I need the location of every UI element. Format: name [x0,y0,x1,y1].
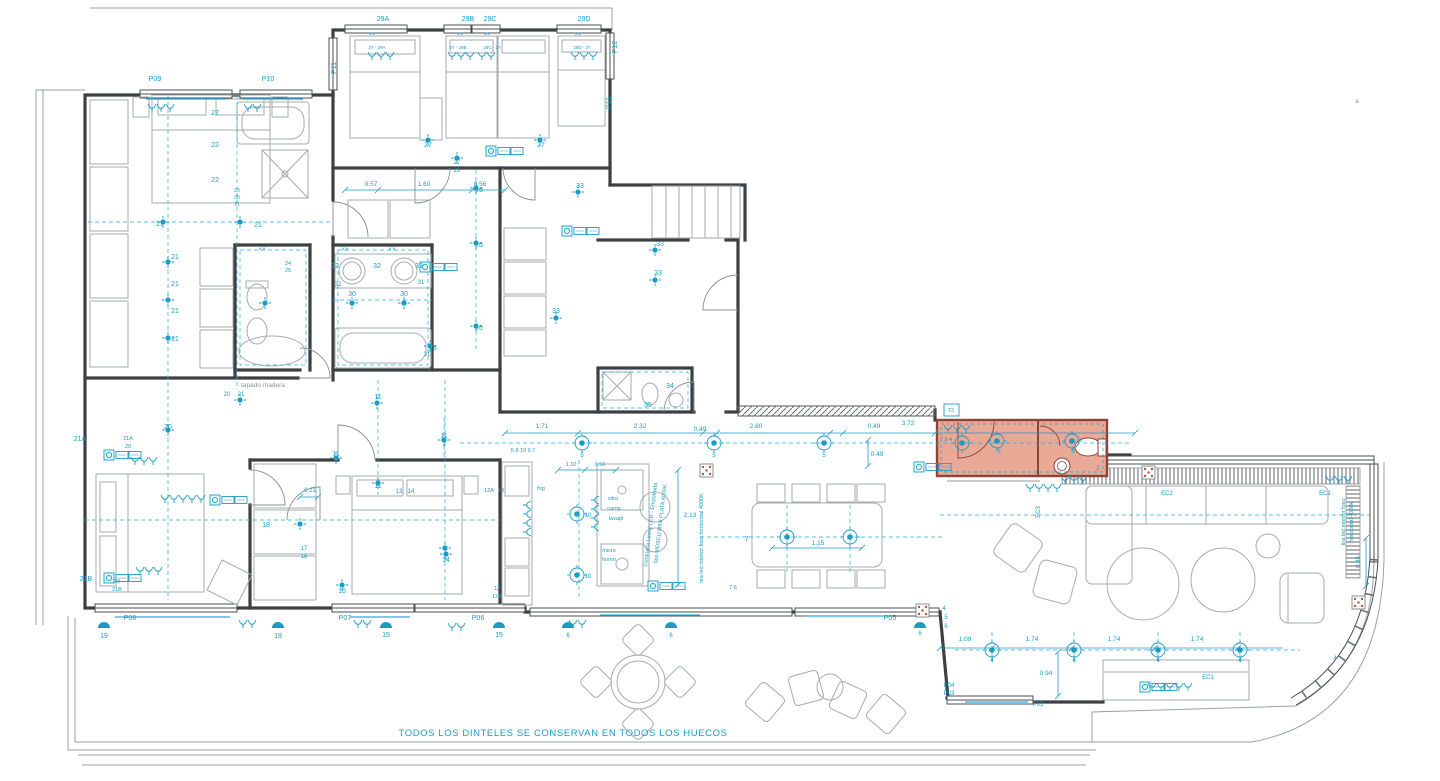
plan-label: P03 [944,691,955,697]
ceiling-light-icon [162,294,174,306]
plan-label: 7 8 4 [940,437,952,443]
plan-label: 18 [262,522,270,529]
plan-label: 4 [1238,658,1242,664]
ceiling-light-icon [398,297,410,309]
plan-label: 23 [234,188,240,194]
dimension-line [1055,649,1061,699]
plan-label: 0.57 [365,181,378,188]
socket-outlet-icon [486,146,523,156]
plan-label: 21B [112,587,122,593]
plan-label: horizontal 4000k [1349,502,1355,543]
plan-label: 5 [822,453,826,459]
plan-label: 0.21 [304,488,316,494]
plan-label: 15 [495,632,503,639]
plan-label: vitro [608,496,618,502]
plan-label: 10 [585,574,592,580]
socket-outlet-icon [648,581,685,591]
switch-curtain-icon [354,620,371,628]
plan-label: 20 [114,579,120,585]
switch-curtain-icon [571,52,597,60]
plan-label: 22 [211,177,219,184]
plan-label: EC1 [1319,491,1331,497]
switch-curtain-icon [523,501,531,536]
plan-label: 33 [552,308,560,315]
plan-label: 17 [301,546,308,552]
wall-light-icon [914,622,926,628]
plan-label: 13 [396,489,403,495]
plan-label: 11 [440,433,447,440]
floor-plan-svg: 29A29B29C29D27 - 29A27 - 29B29C - 2729D … [0,0,1440,781]
plan-label: 20 [224,392,231,398]
ring-light-icon [1230,640,1250,660]
plan-label: ×× [258,247,266,253]
plan-label: 14 [408,489,415,495]
plan-label: 15 [338,588,346,595]
plan-label: 4 [1333,656,1337,662]
plan-label: 19 [100,633,108,640]
plan-label: 22 [211,142,219,149]
ring-light-icon [1148,640,1168,660]
plan-label: 5 8 10 9 7 [511,448,535,454]
plan-label: 20 [234,195,240,201]
plan-label: 26 [475,242,483,249]
switch-curtain-icon [244,104,261,112]
plan-label: 20 [125,444,131,450]
plan-label: 25 [285,268,291,274]
plan-label: 32 [335,282,342,288]
plan-label: 21 [234,202,240,208]
plan-label: frig [537,486,545,492]
plan-label: 11 [374,483,381,490]
plan-label: EC2 [1161,491,1173,497]
plan-label: a [1355,99,1359,105]
plan-label: 1.09 [959,636,972,643]
plan-label: 12B [492,594,502,600]
plan-label: 13 [498,488,504,494]
ring-light-icon [1064,640,1084,660]
plan-label: 14 [442,557,450,564]
ceiling-light-icon [346,297,358,309]
dimension-line [675,467,681,588]
socket-outlet-icon [562,226,599,236]
plan-label: P08 [124,615,137,622]
plan-label: 5 [944,615,948,621]
plan-label: 21 [171,308,179,315]
plan-label: 4 [1072,658,1076,664]
plan-label: EC1 [1202,675,1214,681]
plan-label: 12 [494,586,500,592]
hatched-wall [738,406,935,416]
ceiling-light-icon [234,216,246,228]
plan-label: 0.85 [1356,556,1362,568]
site-outline [36,8,1384,765]
plan-label: 0.49 [871,451,884,458]
plan-label: 29B [462,16,475,23]
plan-label: horno [602,557,616,563]
symbols-layer [98,52,1369,699]
plan-label: P10 [262,76,275,83]
plan-label: 15 [382,632,390,639]
wall-light-icon [665,622,677,628]
plan-label: 16 [301,554,308,560]
plan-label: 6 [918,631,922,637]
plan-label: P04 [944,683,955,689]
plan-label: camp [607,506,620,512]
ring-light-icon [982,640,1002,660]
plan-label: P07 [339,615,352,622]
plan-label: 33 [656,241,664,248]
plan-label: ×× [388,247,396,253]
plan-label: 21 [171,336,179,343]
plan-label: 2.13 [684,512,697,519]
plan-label: 1.74 [1026,636,1039,643]
plan-label: 27 [537,142,545,149]
plan-label: 22 [211,110,219,117]
plan-label: 1.60 [418,181,431,188]
plan-label: 27 [424,142,432,149]
plan-label: P05 [884,615,897,622]
curved-glass-facade [1291,558,1378,705]
plan-label: 0.56 [595,462,606,468]
wall-light-icon [380,622,392,628]
plan-label: 0.49 [868,423,881,430]
dimension-line [555,467,619,473]
plan-label: 11 [332,451,339,458]
socket-outlet-icon [420,262,457,272]
plan-label: 0.94 [1040,670,1053,677]
plan-label: 1.15 [812,540,825,547]
plan-label: 29C - 27 [483,45,501,50]
plan-label: 27 - 29A [368,45,385,50]
plan-label: P06 [472,615,485,622]
plan-label: 29C [484,16,497,23]
text-labels-layer: 29A29B29C29D27 - 29A27 - 29B29C - 2729D … [74,16,1362,708]
plan-label: 35 [644,402,652,409]
plan-label: micro [602,548,615,554]
plan-label: 24 [285,261,291,267]
plan-label: 21A [123,436,133,442]
plan-label: ×× [483,32,491,38]
plan-label: 29D - 27 [573,45,591,50]
plan-label: 4 [942,606,946,612]
plan-note: TODOS LOS DINTELES SE CONSERVAN EN TODOS… [398,728,727,739]
plan-label: 27 - 29B [449,45,466,50]
plan-label: 33 [576,183,584,190]
plan-label: 7 [745,536,749,543]
plan-label: 12A [484,488,494,494]
plan-label: 31 [418,280,425,286]
plan-label: 32 [331,263,339,270]
plan-label: 11 [374,394,381,401]
plan-label: 1.71 [536,423,549,430]
plan-label: 30 [400,291,408,298]
plan-label: 2.80 [750,423,763,430]
walls-layer [85,30,1130,702]
socket-outlet-icon [104,450,141,460]
plan-label: 21 [156,221,164,228]
switch-curtain-icon [239,620,256,628]
ring-light-icon [777,527,797,547]
plan-label: 29A [377,16,390,23]
plan-label: 32 [415,263,423,270]
plan-label: tapado madera [241,382,285,389]
plan-label: 4 [1156,658,1160,664]
plan-label: 26 [475,325,483,332]
plan-label: 3.72 [902,420,915,427]
plan-label: 26 [475,187,483,194]
ceiling-light-icon [259,297,271,309]
plan-label: lavapl [609,516,623,522]
socket-outlet-icon [104,573,141,583]
plan-label: ×× [368,32,376,38]
wall-light-icon [98,622,110,628]
plan-label: 33 [654,270,662,277]
plan-label: 21B [80,576,93,583]
plan-label: 5 [580,453,584,459]
plan-label: P11 [606,97,613,109]
plan-label: ×× [574,32,582,38]
dimension-line [1363,535,1369,589]
floor-plan-canvas: 29A29B29C29D27 - 29A27 - 29B29C - 2729D … [0,0,1440,781]
plan-label: 1.10 [566,462,577,468]
plan-label: T3 [948,408,954,414]
plan-label: tira led interior foso horizontal 4000K [699,493,705,583]
plan-label: ×× [456,32,464,38]
plan-label: P03 [1033,702,1044,708]
plan-label: 29D [578,16,591,23]
plan-label: 4 [990,658,994,664]
wall-light-icon [493,622,505,628]
plan-label: 6 [669,633,673,639]
plan-label: P12 [612,41,619,54]
plan-label: 21 [254,222,262,229]
switch-curtain-icon [136,567,162,575]
plan-label: 7 6 [729,585,737,591]
plan-label: 26 [454,168,461,174]
wall-light-icon [562,622,574,628]
switch-curtain-icon [1026,484,1061,492]
plan-label: 0.49 [694,426,707,433]
plan-label: P09 [149,76,162,83]
plan-label: 19 [274,633,282,640]
socket-outlet-icon [210,495,247,505]
plan-label: 21 [171,281,179,288]
plan-label: 6 [944,624,948,630]
plan-label: 1.74 [1191,636,1204,643]
plan-label: 32 [373,263,381,270]
plan-label: 20 [164,424,172,431]
switch-curtain-icon [368,52,394,60]
plan-label: 34 [666,383,674,390]
plan-label: 31 [424,352,431,358]
plan-label: 21A [74,436,87,443]
plan-label: 10 [585,513,592,519]
dimension-line [297,494,321,500]
switch-curtain-icon [448,623,465,631]
plan-label: 21 [238,392,245,398]
plan-label: tira led interior foso [1341,499,1347,546]
wall-light-icon [272,622,284,628]
switch-curtain-icon [591,496,599,531]
plan-label: 27 [454,160,461,166]
plan-label: 1.74 [1108,636,1121,643]
plan-label: P11 [331,62,338,74]
switch-curtain-icon [161,495,205,503]
plan-label: 5 [712,453,716,459]
plan-label: 30 [348,291,356,298]
ring-light-icon [814,433,834,453]
doors-layer [250,168,738,520]
plan-label: 2.32 [634,423,647,430]
plan-label: 21 [171,254,179,261]
plan-label: ×× [341,247,349,253]
plan-label: 6 [566,633,570,639]
socket-outlet-icon [914,462,951,472]
plan-label: 26 [429,345,437,352]
plan-label: EC3 [1036,506,1042,518]
ring-light-icon [840,527,860,547]
